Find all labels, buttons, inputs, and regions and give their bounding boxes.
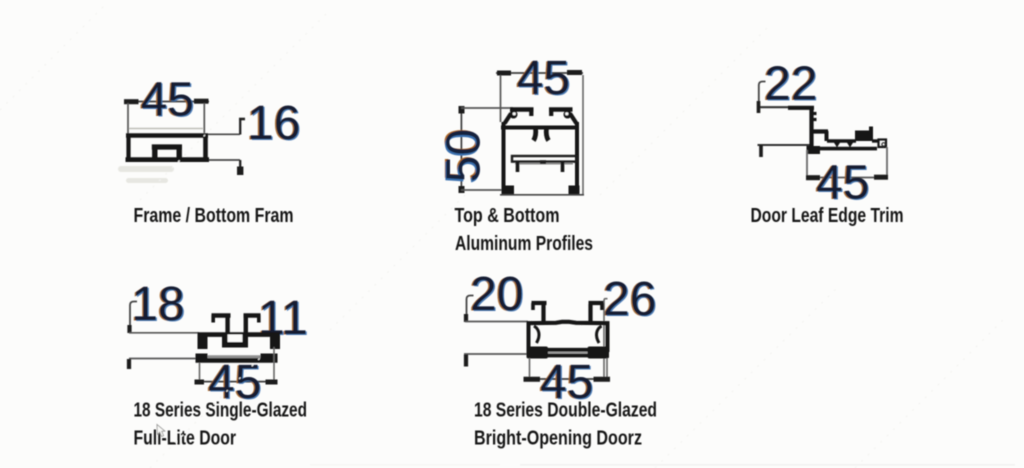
svg-text:11: 11 [258, 292, 308, 345]
svg-text:22: 22 [764, 58, 817, 111]
svg-text:Frame / Bottom Fram: Frame / Bottom Fram [134, 204, 294, 227]
svg-text:45: 45 [816, 157, 869, 210]
svg-text:Aluminum Profiles: Aluminum Profiles [455, 232, 593, 255]
svg-text:20: 20 [470, 268, 523, 321]
svg-text:16: 16 [247, 97, 300, 150]
svg-text:26: 26 [603, 273, 656, 326]
svg-text:Top & Bottom: Top & Bottom [455, 204, 560, 227]
svg-text:Bright-Opening Doorz: Bright-Opening Doorz [474, 427, 642, 450]
svg-text:18 Series Double-Glazed: 18 Series Double-Glazed [474, 399, 657, 422]
svg-text:Door Leaf Edge Trim: Door Leaf Edge Trim [751, 204, 904, 227]
svg-text:Full-Lite Door: Full-Lite Door [134, 427, 237, 450]
svg-text:18 Series Single-Glazed: 18 Series Single-Glazed [134, 399, 308, 422]
svg-text:18: 18 [131, 278, 184, 331]
svg-text:50: 50 [437, 129, 490, 182]
svg-text:45: 45 [517, 52, 570, 105]
svg-text:45: 45 [141, 74, 194, 127]
